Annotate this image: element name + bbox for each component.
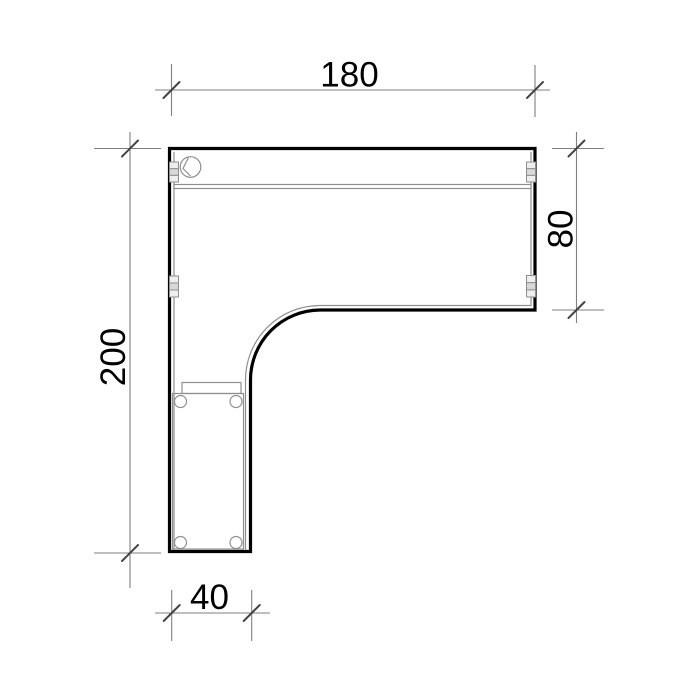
caster-icon [175, 396, 187, 408]
desk [170, 149, 536, 552]
desk-outline [170, 149, 536, 552]
dimension-label-bottom: 40 [190, 578, 229, 617]
caster-icon [175, 537, 187, 549]
technical-drawing-svg: 180 80 200 40 [0, 0, 700, 700]
dimension-label-top: 180 [320, 56, 378, 95]
caster-icon [230, 396, 242, 408]
dimension-labels: 180 80 200 40 [94, 56, 581, 618]
panel-connector-left-bottom [170, 276, 179, 297]
drawing-canvas: 180 80 200 40 [0, 0, 700, 700]
panel-connector-right-bottom [527, 276, 536, 298]
dimension-label-left: 200 [94, 328, 133, 386]
cable-duct [174, 185, 531, 189]
dimension-label-right: 80 [542, 210, 581, 249]
panel-connector-left-top [170, 162, 179, 182]
panel-connector-right-top [527, 162, 536, 182]
caster-icon [230, 537, 242, 549]
